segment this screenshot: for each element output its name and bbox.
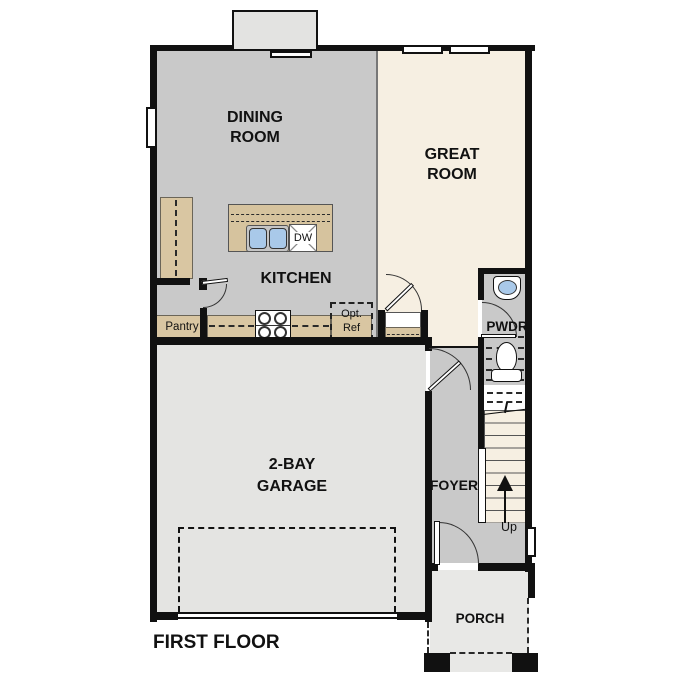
- porch-bottom-dashed-edge: [450, 652, 512, 654]
- bottom-counter-right-dash: [292, 325, 329, 327]
- front-door-leaf: [434, 521, 440, 565]
- dining-room-label: DINING ROOM: [215, 108, 295, 148]
- closet-stub-left: [378, 310, 385, 344]
- cooktop-burner-2: [274, 312, 287, 325]
- dining-great-divider-line: [376, 51, 378, 339]
- cooktop-burner-1: [258, 312, 271, 325]
- dishwasher: DW: [289, 224, 317, 252]
- pwdr-sink-basin: [498, 280, 517, 295]
- stair-dash-line-2: [487, 401, 522, 403]
- great-room-window-2: [449, 45, 490, 54]
- pwdr-left-wall-lower: [478, 337, 484, 448]
- porch-corner-block-left: [424, 653, 450, 672]
- up-arrow-head-icon: [497, 475, 513, 491]
- opt-ref-label: Opt. Ref: [332, 307, 371, 335]
- foyer-great-divider-line: [430, 346, 478, 348]
- top-wall-left: [150, 45, 233, 51]
- dishwasher-label: DW: [291, 232, 315, 244]
- right-wall: [525, 45, 532, 572]
- toilet-tank: [491, 369, 522, 382]
- bottom-counter-left-dash: [209, 325, 254, 327]
- garage-door-panel: [178, 612, 397, 619]
- sink-basin-left: [249, 228, 267, 249]
- porch-left-dashed-edge: [427, 622, 429, 653]
- bay-window-sill: [270, 51, 312, 58]
- up-arrow-shaft: [504, 489, 506, 523]
- kitchen-label: KITCHEN: [246, 269, 346, 289]
- foyer-label: FOYER: [428, 475, 480, 495]
- porch-step: [449, 655, 513, 672]
- dining-window: [146, 107, 157, 148]
- stair-window: [526, 527, 536, 557]
- great-room-window-1: [402, 45, 443, 54]
- pwdr-top-wall: [478, 268, 532, 274]
- sink-basin-right: [269, 228, 287, 249]
- floor-plan: DW Opt. Ref: [0, 0, 687, 687]
- stair-dash-line-1: [487, 392, 522, 394]
- foyer-bottom-wall-right: [478, 563, 535, 571]
- closet-stub-right: [421, 310, 428, 344]
- bay-window-box: [232, 10, 318, 51]
- pwdr-label: PWDR: [482, 317, 532, 337]
- porch-left-wall: [425, 570, 432, 622]
- porch-right-wall: [528, 570, 535, 598]
- porch-label: PORCH: [448, 609, 512, 629]
- great-room-label: GREAT ROOM: [412, 145, 492, 185]
- island-dash-1: [231, 214, 330, 215]
- pwdr-left-wall-upper: [478, 268, 484, 300]
- coat-closet-rod-dash: [387, 334, 419, 335]
- opt-ref-box: Opt. Ref: [330, 302, 373, 341]
- garage-label: 2-BAY GARAGE: [247, 454, 337, 498]
- garage-car-space-outline: [178, 527, 396, 612]
- first-floor-title: FIRST FLOOR: [153, 633, 373, 653]
- porch-corner-block-right: [512, 653, 538, 672]
- pantry-label: Pantry: [159, 321, 205, 333]
- porch-right-dashed-edge: [527, 598, 529, 653]
- pantry-top-wall: [150, 278, 190, 285]
- toilet-bowl: [496, 342, 517, 372]
- kitchen-garage-wall: [150, 337, 432, 345]
- garage-bottom-wall-left: [150, 612, 178, 620]
- kitchen-left-counter-dash: [175, 200, 177, 276]
- stairs-up-label: Up: [494, 520, 524, 534]
- island-dash-2: [231, 221, 330, 222]
